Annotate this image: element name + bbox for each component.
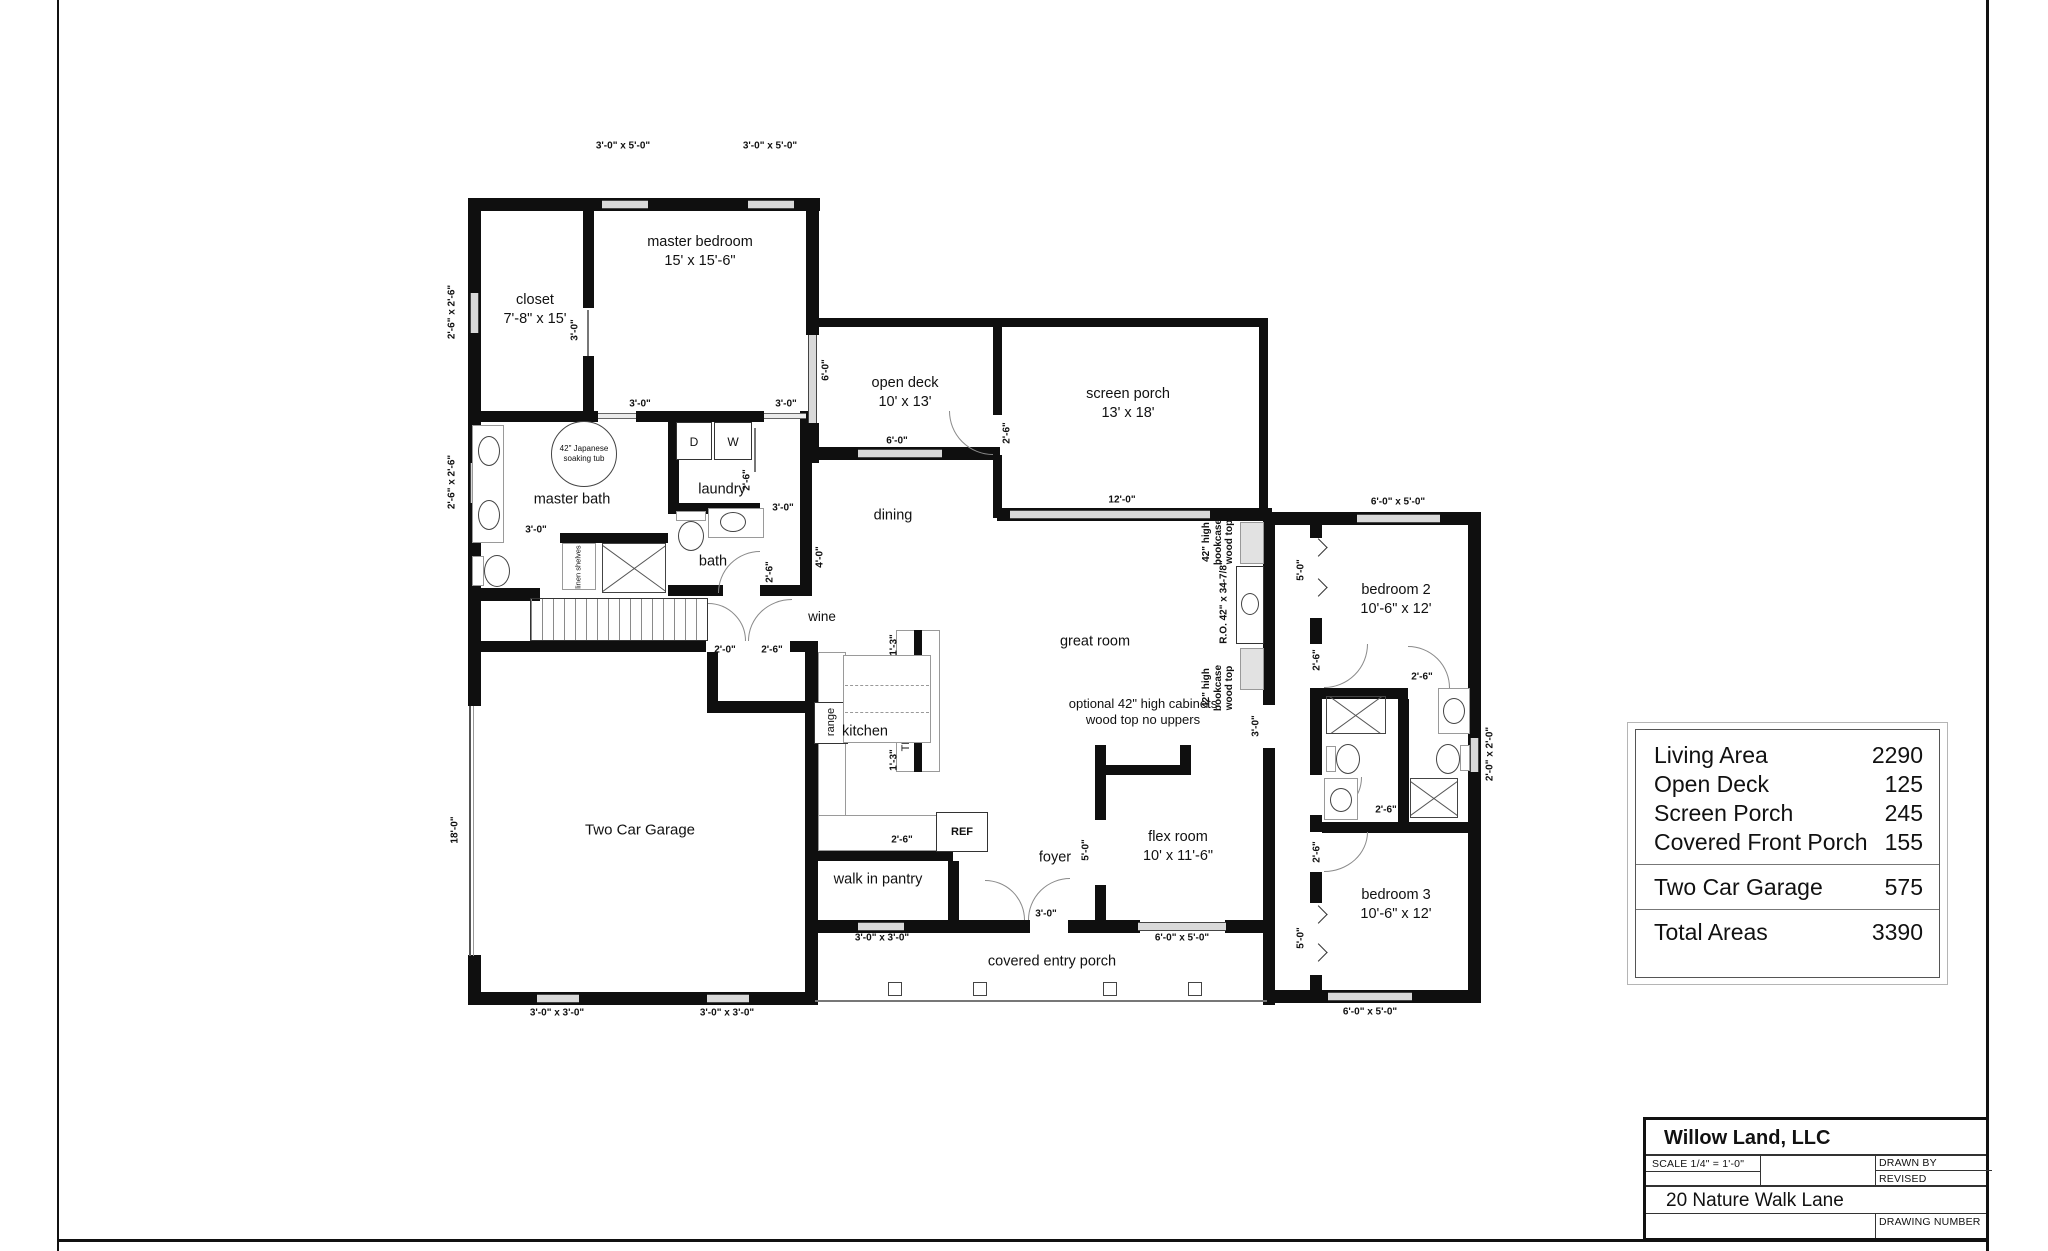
wall	[806, 198, 819, 335]
table-row: Total Areas 3390	[1636, 918, 1939, 947]
wall	[1310, 512, 1322, 538]
bookcase	[1240, 648, 1264, 690]
wall	[993, 455, 1002, 518]
sink	[1330, 788, 1352, 812]
wall	[468, 992, 815, 1005]
shower	[602, 543, 666, 593]
wall	[668, 411, 764, 422]
dim-label: 3'-0" x 3'-0"	[855, 933, 909, 944]
dim-label: 3'-0"	[525, 525, 547, 536]
room-name: walk in pantry	[834, 872, 923, 888]
area-value: 2290	[1872, 741, 1923, 770]
room-name: laundry	[698, 482, 746, 498]
wall	[707, 701, 805, 713]
bifold-chevron	[1309, 905, 1327, 923]
wall	[800, 503, 812, 595]
porch-post	[973, 982, 987, 996]
wall	[1310, 872, 1322, 903]
window	[1138, 922, 1226, 931]
cased-opening	[598, 413, 636, 419]
wall	[813, 318, 997, 327]
dim-label: 3'-0"	[775, 399, 797, 410]
toilet-tank	[472, 556, 484, 586]
window	[1470, 738, 1479, 772]
room-label-open-deck: open deck 10' x 13'	[872, 374, 939, 412]
wall	[1263, 748, 1275, 923]
wall	[1180, 745, 1191, 775]
door-arc	[985, 880, 1025, 920]
divider	[1760, 1154, 1761, 1185]
area-value: 245	[1885, 799, 1923, 828]
area-value: 155	[1885, 828, 1923, 857]
dim-label: 3'-0"	[629, 399, 651, 410]
room-name: foyer	[1039, 850, 1071, 866]
window	[1357, 514, 1440, 523]
dim-label: 3'-0" x 3'-0"	[530, 1008, 584, 1019]
door-leaf	[754, 428, 756, 472]
wall	[1263, 512, 1275, 705]
toilet	[1436, 744, 1460, 774]
dim-label: 3'-0" x 5'-0"	[596, 141, 650, 152]
dim-label: 2'-0" x 2'-0"	[1485, 727, 1496, 781]
wall	[993, 318, 1268, 327]
room-size: 10' x 11'-6"	[1143, 848, 1213, 864]
room-name: flex room	[1148, 829, 1208, 845]
wall	[960, 920, 1030, 933]
area-summary-inner: Living Area 2290 Open Deck 125 Screen Po…	[1635, 729, 1940, 978]
room-name: bath	[699, 554, 727, 570]
sink	[478, 436, 500, 466]
room-name: bedroom 3	[1361, 887, 1430, 903]
toilet-tank	[1326, 746, 1336, 772]
drawing-sheet: 42" Japanese soaking tub linen shelves D…	[0, 0, 2048, 1251]
stairs	[530, 598, 708, 641]
window	[1010, 510, 1210, 519]
room-label-dining: dining	[874, 507, 913, 526]
wall	[1310, 815, 1322, 832]
wall	[790, 641, 805, 652]
toilet-tank	[676, 511, 706, 521]
wall	[1106, 765, 1184, 775]
revised-label: REVISED	[1879, 1173, 1927, 1185]
room-label-bath: bath	[699, 553, 727, 572]
room-size: 10' x 13'	[878, 394, 931, 410]
dim-label: 2'-0"	[714, 645, 736, 656]
room-label-garage: Two Car Garage	[585, 820, 695, 840]
dim-label: 2'-6"	[1312, 841, 1323, 863]
dim-label: 2'-6" x 2'-6"	[447, 285, 458, 339]
room-name: dining	[874, 508, 913, 524]
room-name: screen porch	[1086, 386, 1170, 402]
room-label-master-bath: master bath	[534, 491, 611, 510]
cased-opening	[764, 413, 806, 419]
room-size: 10'-6" x 12'	[1360, 601, 1431, 617]
room-name: closet	[516, 292, 554, 308]
dim-label: 5'-0"	[1296, 559, 1307, 581]
bookcase-ro-note: R.O. 42" x 34-7/8"	[1219, 560, 1230, 643]
room-label-kitchen: kitchen	[842, 723, 888, 742]
room-size: 7'-8" x 15'	[503, 311, 566, 327]
dim-label: 1'-3"	[889, 634, 900, 656]
table-row: Covered Front Porch 155	[1636, 828, 1939, 857]
dim-label: 2'-6"	[1002, 422, 1013, 444]
toilet	[484, 555, 510, 587]
toilet-tank	[1460, 745, 1470, 771]
divider	[1646, 1154, 1986, 1156]
wall	[468, 198, 481, 611]
room-label-closet: closet 7'-8" x 15'	[503, 291, 566, 329]
room-name: Two Car Garage	[585, 821, 695, 838]
room-name: master bedroom	[647, 234, 753, 250]
bifold-chevron	[1309, 943, 1327, 961]
dim-label: 3'-0"	[1035, 909, 1057, 920]
dashed-line	[845, 685, 929, 686]
wall	[1095, 745, 1106, 820]
wall	[1310, 975, 1322, 1003]
toilet	[678, 521, 704, 551]
area-value: 125	[1885, 770, 1923, 799]
area-summary-table: Living Area 2290 Open Deck 125 Screen Po…	[1627, 722, 1948, 985]
door-arc	[748, 599, 792, 641]
area-label: Screen Porch	[1654, 799, 1793, 828]
room-size: 10'-6" x 12'	[1360, 906, 1431, 922]
divider	[1875, 1213, 1876, 1238]
range-label: range	[825, 708, 837, 736]
wall	[800, 411, 812, 513]
room-label-entry-porch: covered entry porch	[988, 953, 1116, 972]
area-value: 3390	[1872, 918, 1923, 947]
room-label-master-bedroom: master bedroom 15' x 15'-6"	[647, 233, 753, 271]
porch-post	[1103, 982, 1117, 996]
wall	[668, 585, 723, 596]
bookcase-note: 42" high bookcase wood top	[1201, 659, 1236, 717]
window	[808, 335, 817, 423]
dim-label: 2'-6" x 2'-6"	[447, 455, 458, 509]
dim-label: 6'-0"	[821, 359, 832, 381]
door-arc	[708, 603, 746, 641]
drawing-number-label: DRAWING NUMBER	[1879, 1216, 1981, 1228]
table-divider: Total Areas 3390	[1636, 909, 1939, 947]
room-size: 13' x 18'	[1101, 405, 1154, 421]
washer-label: W	[727, 435, 738, 449]
room-name: wine	[808, 609, 836, 624]
dashed-line	[845, 712, 929, 713]
dim-label: 2'-6"	[765, 561, 776, 583]
window	[858, 922, 904, 931]
table-row: Open Deck 125	[1636, 770, 1939, 799]
sink	[478, 500, 500, 530]
dim-label: 2'-6"	[1312, 649, 1323, 671]
wall	[760, 585, 812, 596]
dim-label: 4'-0"	[815, 546, 826, 568]
window	[858, 449, 942, 458]
linen-label: linen shelves	[575, 545, 584, 589]
area-group-living: Living Area 2290 Open Deck 125 Screen Po…	[1636, 730, 1939, 857]
door-arc	[949, 411, 993, 455]
dim-label: 5'-0"	[1081, 839, 1092, 861]
wall	[583, 211, 594, 308]
sheet-border-right	[1986, 0, 1989, 1251]
area-label: Living Area	[1654, 741, 1768, 770]
room-name: open deck	[872, 375, 939, 391]
dim-label: 2'-6"	[1375, 805, 1397, 816]
table-row: Screen Porch 245	[1636, 799, 1939, 828]
window	[1328, 992, 1412, 1001]
divider	[1646, 1171, 1760, 1172]
door-arc	[1324, 832, 1368, 872]
area-label: Two Car Garage	[1654, 873, 1823, 902]
dim-label: 3'-0"	[1251, 715, 1262, 737]
dryer-label: D	[690, 435, 699, 449]
dim-label: 6'-0"	[886, 436, 908, 447]
tub-label: 42" Japanese soaking tub	[552, 444, 616, 463]
porch-edge	[815, 1000, 1267, 1002]
dim-label: 2'-6"	[761, 645, 783, 656]
table-row: Living Area 2290	[1636, 741, 1939, 770]
dim-label: 2'-6"	[891, 835, 913, 846]
dim-label: 3'-0"	[772, 503, 794, 514]
divider	[1646, 1213, 1986, 1214]
shower	[1326, 696, 1386, 734]
scale-label: SCALE 1/4" = 1'-0"	[1652, 1158, 1744, 1170]
room-label-bedroom-3: bedroom 3 10'-6" x 12'	[1360, 886, 1431, 924]
wall	[805, 641, 818, 1005]
wall	[948, 861, 959, 923]
table-row: Two Car Garage 575	[1636, 873, 1939, 902]
room-name: great room	[1060, 634, 1130, 650]
wall	[818, 850, 953, 861]
porch-post	[1188, 982, 1202, 996]
wall	[1310, 618, 1322, 644]
table-divider: Two Car Garage 575	[1636, 864, 1939, 902]
window	[602, 200, 648, 209]
room-label-flex-room: flex room 10' x 11'-6"	[1143, 828, 1213, 866]
room-name: master bath	[534, 492, 611, 508]
door-leaf	[587, 310, 589, 356]
drawn-by-label: DRAWN BY	[1879, 1157, 1937, 1169]
room-label-foyer: foyer	[1039, 849, 1071, 868]
wall	[468, 641, 706, 652]
wall	[993, 318, 1002, 415]
garage-door	[469, 706, 474, 956]
divider	[1646, 1185, 1986, 1187]
room-name: covered entry porch	[988, 954, 1116, 970]
window	[470, 293, 479, 333]
dim-label: 2'-6"	[742, 469, 753, 491]
window	[537, 994, 579, 1003]
bifold-chevron	[1309, 578, 1327, 596]
divider	[1875, 1170, 1992, 1171]
room-name: bedroom 2	[1361, 582, 1430, 598]
toilet	[1336, 744, 1360, 774]
porch-post	[888, 982, 902, 996]
wall	[1259, 318, 1268, 521]
wall	[1398, 699, 1409, 822]
sink	[720, 512, 746, 532]
dim-label: 12'-0"	[1108, 495, 1135, 506]
room-label-wine: wine	[808, 608, 836, 626]
title-block: Willow Land, LLC SCALE 1/4" = 1'-0" DRAW…	[1643, 1117, 1989, 1241]
dim-label: 6'-0" x 5'-0"	[1343, 1007, 1397, 1018]
wall	[560, 533, 668, 543]
shower	[1410, 778, 1458, 818]
address: 20 Nature Walk Lane	[1666, 1190, 1844, 1212]
wall	[636, 411, 668, 422]
area-label: Open Deck	[1654, 770, 1769, 799]
wall	[1310, 688, 1322, 775]
dim-label: 1'-3"	[889, 749, 900, 771]
room-label-laundry: laundry	[698, 481, 746, 500]
window	[707, 994, 749, 1003]
dim-label: 3'-0"	[570, 319, 581, 341]
dim-label: 5'-0"	[1296, 927, 1307, 949]
dim-label: 6'-0" x 5'-0"	[1155, 933, 1209, 944]
sheet-border-left	[57, 0, 59, 1251]
wall	[1095, 885, 1106, 925]
sink	[1443, 698, 1465, 724]
fireplace-circle	[1241, 593, 1259, 615]
dim-label: 3'-0" x 3'-0"	[700, 1008, 754, 1019]
dim-label: 18'-0"	[450, 816, 461, 843]
room-label-screen-porch: screen porch 13' x 18'	[1086, 385, 1170, 423]
room-name: kitchen	[842, 724, 888, 740]
area-value: 575	[1885, 873, 1923, 902]
wall	[583, 356, 594, 413]
company-name: Willow Land, LLC	[1664, 1127, 1830, 1150]
room-label-bedroom-2: bedroom 2 10'-6" x 12'	[1360, 581, 1431, 619]
dim-label: 6'-0" x 5'-0"	[1371, 497, 1425, 508]
room-label-pantry: walk in pantry	[834, 871, 923, 890]
bookcase	[1240, 522, 1264, 564]
area-label: Total Areas	[1654, 918, 1768, 947]
soaking-tub: 42" Japanese soaking tub	[551, 421, 617, 487]
dim-label: 2'-6"	[1411, 672, 1433, 683]
dim-label: 3'-0" x 5'-0"	[743, 141, 797, 152]
bifold-chevron	[1309, 538, 1327, 556]
door-arc	[1324, 644, 1368, 688]
room-label-great-room: great room	[1060, 633, 1130, 652]
fridge-label: REF	[951, 826, 973, 838]
wall	[468, 611, 481, 706]
room-size: 15' x 15'-6"	[664, 253, 735, 269]
area-label: Covered Front Porch	[1654, 828, 1867, 857]
window	[748, 200, 794, 209]
